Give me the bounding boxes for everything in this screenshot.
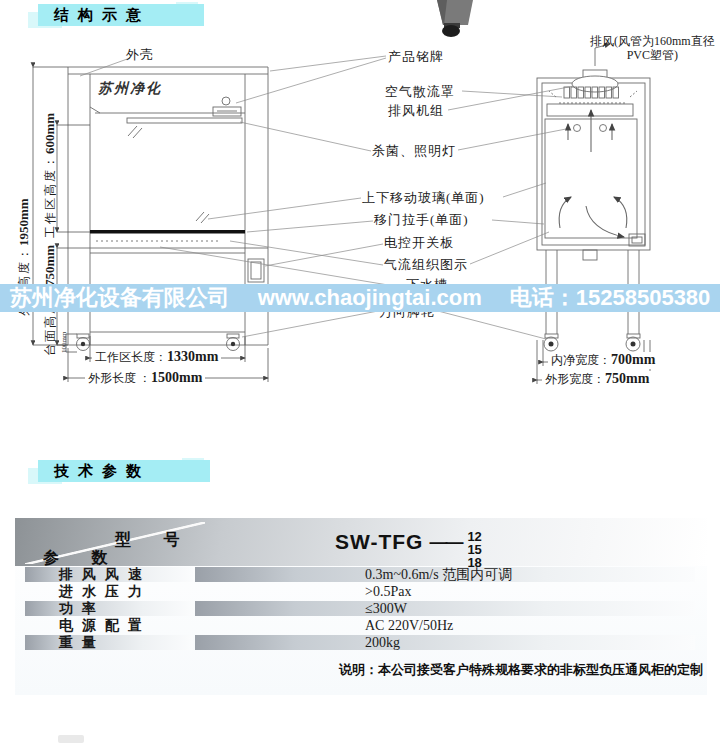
side-caster-left-icon: [544, 334, 558, 351]
section-title-specs: 技术参数: [38, 460, 210, 482]
row-value-water-pressure: >0.5Pax: [365, 583, 411, 600]
label-exhaust-note: 排风(风管为160mm直径 PVC塑管): [590, 34, 715, 62]
front-caster-left-icon: [77, 334, 90, 351]
header-model-label: 型 号: [115, 530, 193, 551]
glass-mark-lower: [196, 212, 209, 223]
row-value-weight: 200kg: [365, 634, 400, 651]
row-value-power-supply: AC 220V/50Hz: [365, 617, 453, 634]
photo-caster-icon: [442, 25, 460, 37]
section-title-specs-text: 技术参数: [54, 462, 150, 481]
structure-drawing: [0, 0, 720, 460]
label-glass: 上下移动玻璃(单面): [362, 189, 485, 207]
airflow-arrows: [559, 110, 627, 237]
table-row: 排风风速 0.3m~0.6m/s 范围内可调: [15, 566, 707, 583]
dim-work-height: 工作区高度：600mm: [42, 113, 59, 238]
row-value-power: ≤300W: [365, 600, 407, 617]
label-exhaust-line2: PVC塑管): [590, 48, 715, 62]
label-fan-unit: 排风机组: [388, 102, 444, 120]
next-section-mark: [58, 735, 84, 743]
spec-table-header: 型 号 参 数 SW-TFG —— 12 15 18: [15, 518, 707, 566]
photo-remnant-leg: [437, 0, 473, 37]
watermark-company: 苏州净化设备有限公司: [10, 283, 230, 313]
label-lamp: 杀菌、照明灯: [372, 142, 456, 160]
label-handle: 移门拉手(单面): [374, 211, 469, 229]
dim-overall-width: 外形宽度：750mm: [542, 371, 652, 388]
table-row: 进水压力 >0.5Pax: [15, 583, 707, 600]
page: 结构示意: [0, 0, 720, 744]
model-sizes: 12 15 18: [467, 530, 481, 569]
watermark-band: 苏州净化设备有限公司 www.chaojingtai.com 电话：152585…: [0, 284, 720, 312]
dim-work-length: 工作区长度：1330mm: [92, 349, 221, 366]
spec-table: 型 号 参 数 SW-TFG —— 12 15 18 排风风速 0.3m~0.6…: [15, 518, 707, 695]
label-control-panel: 电控开关板: [384, 234, 454, 252]
sash-bottom-bar: [90, 230, 245, 234]
row-label-exhaust-speed: 排风风速: [59, 566, 151, 583]
model-dash: ——: [429, 532, 461, 553]
label-diffuser: 空气散流罩: [385, 83, 455, 101]
watermark-website: www.chaojingtai.com: [258, 285, 482, 311]
brand-text: 苏州净化: [98, 80, 162, 98]
model-name: SW-TFG: [335, 530, 423, 554]
label-nameplate: 产品铭牌: [388, 48, 444, 66]
label-shell: 外壳: [126, 46, 154, 64]
label-exhaust-line1: 排风(风管为160mm直径: [590, 34, 715, 48]
row-value-exhaust-speed: 0.3m~0.6m/s 范围内可调: [365, 566, 512, 583]
table-row: 重量 200kg: [15, 634, 707, 651]
row-label-power-supply: 电源配置: [59, 617, 151, 634]
lamp-bar: [127, 118, 242, 123]
row-label-weight: 重量: [59, 634, 105, 651]
watermark-phone: 电话：15258505380: [510, 283, 711, 313]
label-airflow: 气流组织图示: [384, 256, 468, 274]
side-lamp-right: [600, 125, 607, 132]
dim-foot-height: 100mm: [60, 332, 68, 353]
dimension-lines: [33, 67, 650, 384]
dim-inner-width: 内净宽度：700mm: [548, 352, 658, 369]
model-value: SW-TFG —— 12 15 18: [335, 518, 482, 566]
front-caster-right-icon: [227, 334, 240, 351]
glass-mark-upper: [128, 126, 142, 138]
row-label-water-pressure: 进水压力: [59, 583, 151, 600]
spec-note: 说明：本公司接受客户特殊规格要求的非标型负压通风柜的定制: [15, 661, 707, 679]
worktop-line: [68, 248, 268, 253]
table-row: 电源配置 AC 220V/50Hz: [15, 617, 707, 634]
table-row: 功率 ≤300W: [15, 600, 707, 617]
dim-overall-length: 外形长度 ：1500mm: [85, 370, 205, 387]
side-caster-right-icon: [626, 334, 640, 351]
control-panel-box: [248, 259, 264, 282]
row-label-power: 功率: [59, 600, 105, 617]
side-lamp-left: [574, 125, 581, 132]
